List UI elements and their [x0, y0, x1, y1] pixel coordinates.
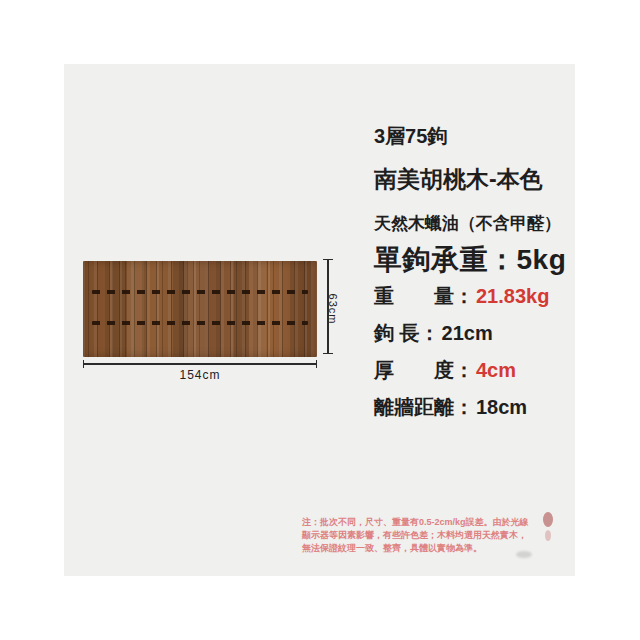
spec-row-wall-distance: 離牆距離：18cm [374, 394, 527, 421]
spec-value-weight: 21.83kg [476, 285, 549, 307]
watermark-smudge [516, 551, 532, 558]
material-title: 南美胡桃木-本色 [374, 164, 543, 195]
spec-value-wall-distance: 18cm [476, 396, 527, 418]
image-background-panel: 63cm 154cm 3層75鉤 南美胡桃木-本色 天然木蠟油（不含甲醛） 單鉤… [64, 64, 575, 576]
spec-value-hook-length: 21cm [442, 322, 493, 344]
disclaimer-line-1: 注：批次不同，尺寸、重量有0.5-2cm/kg誤差。由於光線 [302, 516, 562, 529]
spec-row-thickness: 厚 度：4cm [374, 357, 516, 384]
width-dimension-tick [316, 360, 317, 368]
hook-count-title: 3層75鉤 [374, 123, 447, 150]
spec-label-wall-distance: 離牆距離： [374, 396, 474, 418]
watermark-smudge [545, 530, 551, 541]
finish-subtitle: 天然木蠟油（不含甲醛） [374, 212, 561, 235]
wood-board-image [83, 261, 317, 357]
spec-value-thickness: 4cm [476, 359, 516, 381]
product-spec-image: 63cm 154cm 3層75鉤 南美胡桃木-本色 天然木蠟油（不含甲醛） 單鉤… [0, 0, 640, 640]
hook-capacity-title: 單鉤承重：5kg [374, 241, 566, 279]
disclaimer-line-2: 顯示器等因素影響，有些許色差；木料均選用天然實木， [302, 529, 562, 542]
peg-slot-row [92, 321, 308, 325]
height-dimension-tick [323, 259, 333, 260]
spec-label-hook-length: 鉤 長： [374, 322, 440, 344]
peg-slot-row [92, 290, 308, 294]
height-dimension-label: 63cm [326, 289, 340, 329]
disclaimer-note: 注：批次不同，尺寸、重量有0.5-2cm/kg誤差。由於光線 顯示器等因素影響，… [302, 516, 562, 555]
height-dimension-tick [323, 353, 333, 354]
spec-label-thickness: 厚 度： [374, 359, 474, 381]
watermark-smudge [543, 512, 553, 527]
spec-row-hook-length: 鉤 長：21cm [374, 320, 493, 347]
width-dimension-line [83, 363, 317, 365]
width-dimension-label: 154cm [83, 368, 317, 382]
width-dimension-tick [83, 360, 84, 368]
spec-row-weight: 重 量：21.83kg [374, 283, 549, 310]
spec-label-weight: 重 量： [374, 285, 474, 307]
